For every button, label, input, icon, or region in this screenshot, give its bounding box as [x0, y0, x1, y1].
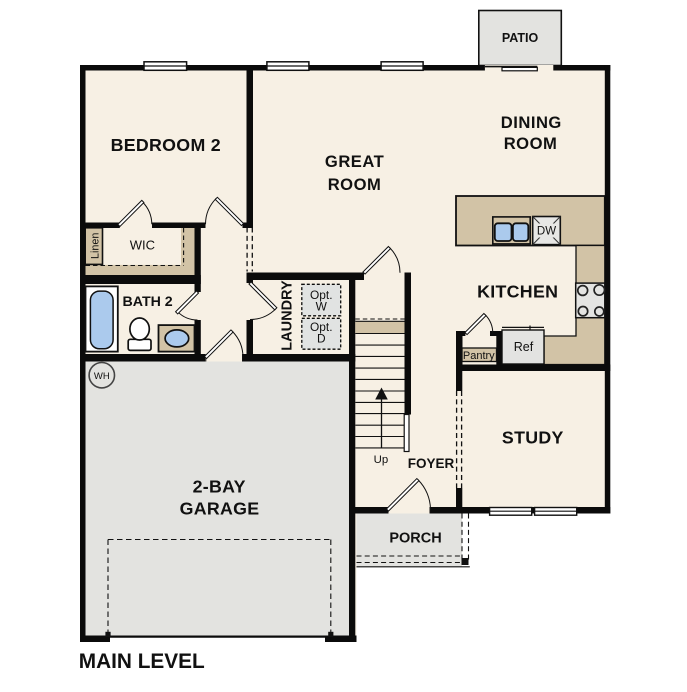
svg-text:MAIN LEVEL: MAIN LEVEL	[79, 650, 205, 673]
svg-text:GREAT: GREAT	[325, 152, 384, 171]
svg-text:Pantry: Pantry	[463, 350, 495, 362]
svg-text:2-BAY: 2-BAY	[193, 477, 246, 497]
svg-text:DINING: DINING	[501, 113, 562, 132]
svg-text:W: W	[316, 299, 328, 313]
svg-text:ROOM: ROOM	[504, 134, 558, 153]
svg-text:STUDY: STUDY	[502, 427, 564, 447]
svg-text:ROOM: ROOM	[328, 175, 382, 194]
svg-text:DW: DW	[537, 226, 556, 238]
svg-text:Ref: Ref	[514, 340, 534, 354]
svg-text:BATH 2: BATH 2	[123, 294, 173, 310]
svg-text:KITCHEN: KITCHEN	[477, 282, 558, 302]
svg-text:Linen: Linen	[90, 233, 102, 259]
svg-text:LAUNDRY: LAUNDRY	[280, 280, 296, 351]
svg-text:GARAGE: GARAGE	[180, 498, 260, 518]
svg-text:PORCH: PORCH	[389, 531, 441, 547]
svg-text:FOYER: FOYER	[408, 456, 455, 471]
svg-text:D: D	[317, 331, 326, 345]
svg-text:BEDROOM 2: BEDROOM 2	[111, 135, 221, 155]
svg-text:WIC: WIC	[130, 238, 155, 253]
svg-text:WH: WH	[94, 371, 110, 382]
svg-text:Up: Up	[374, 454, 389, 466]
svg-text:PATIO: PATIO	[502, 31, 539, 45]
